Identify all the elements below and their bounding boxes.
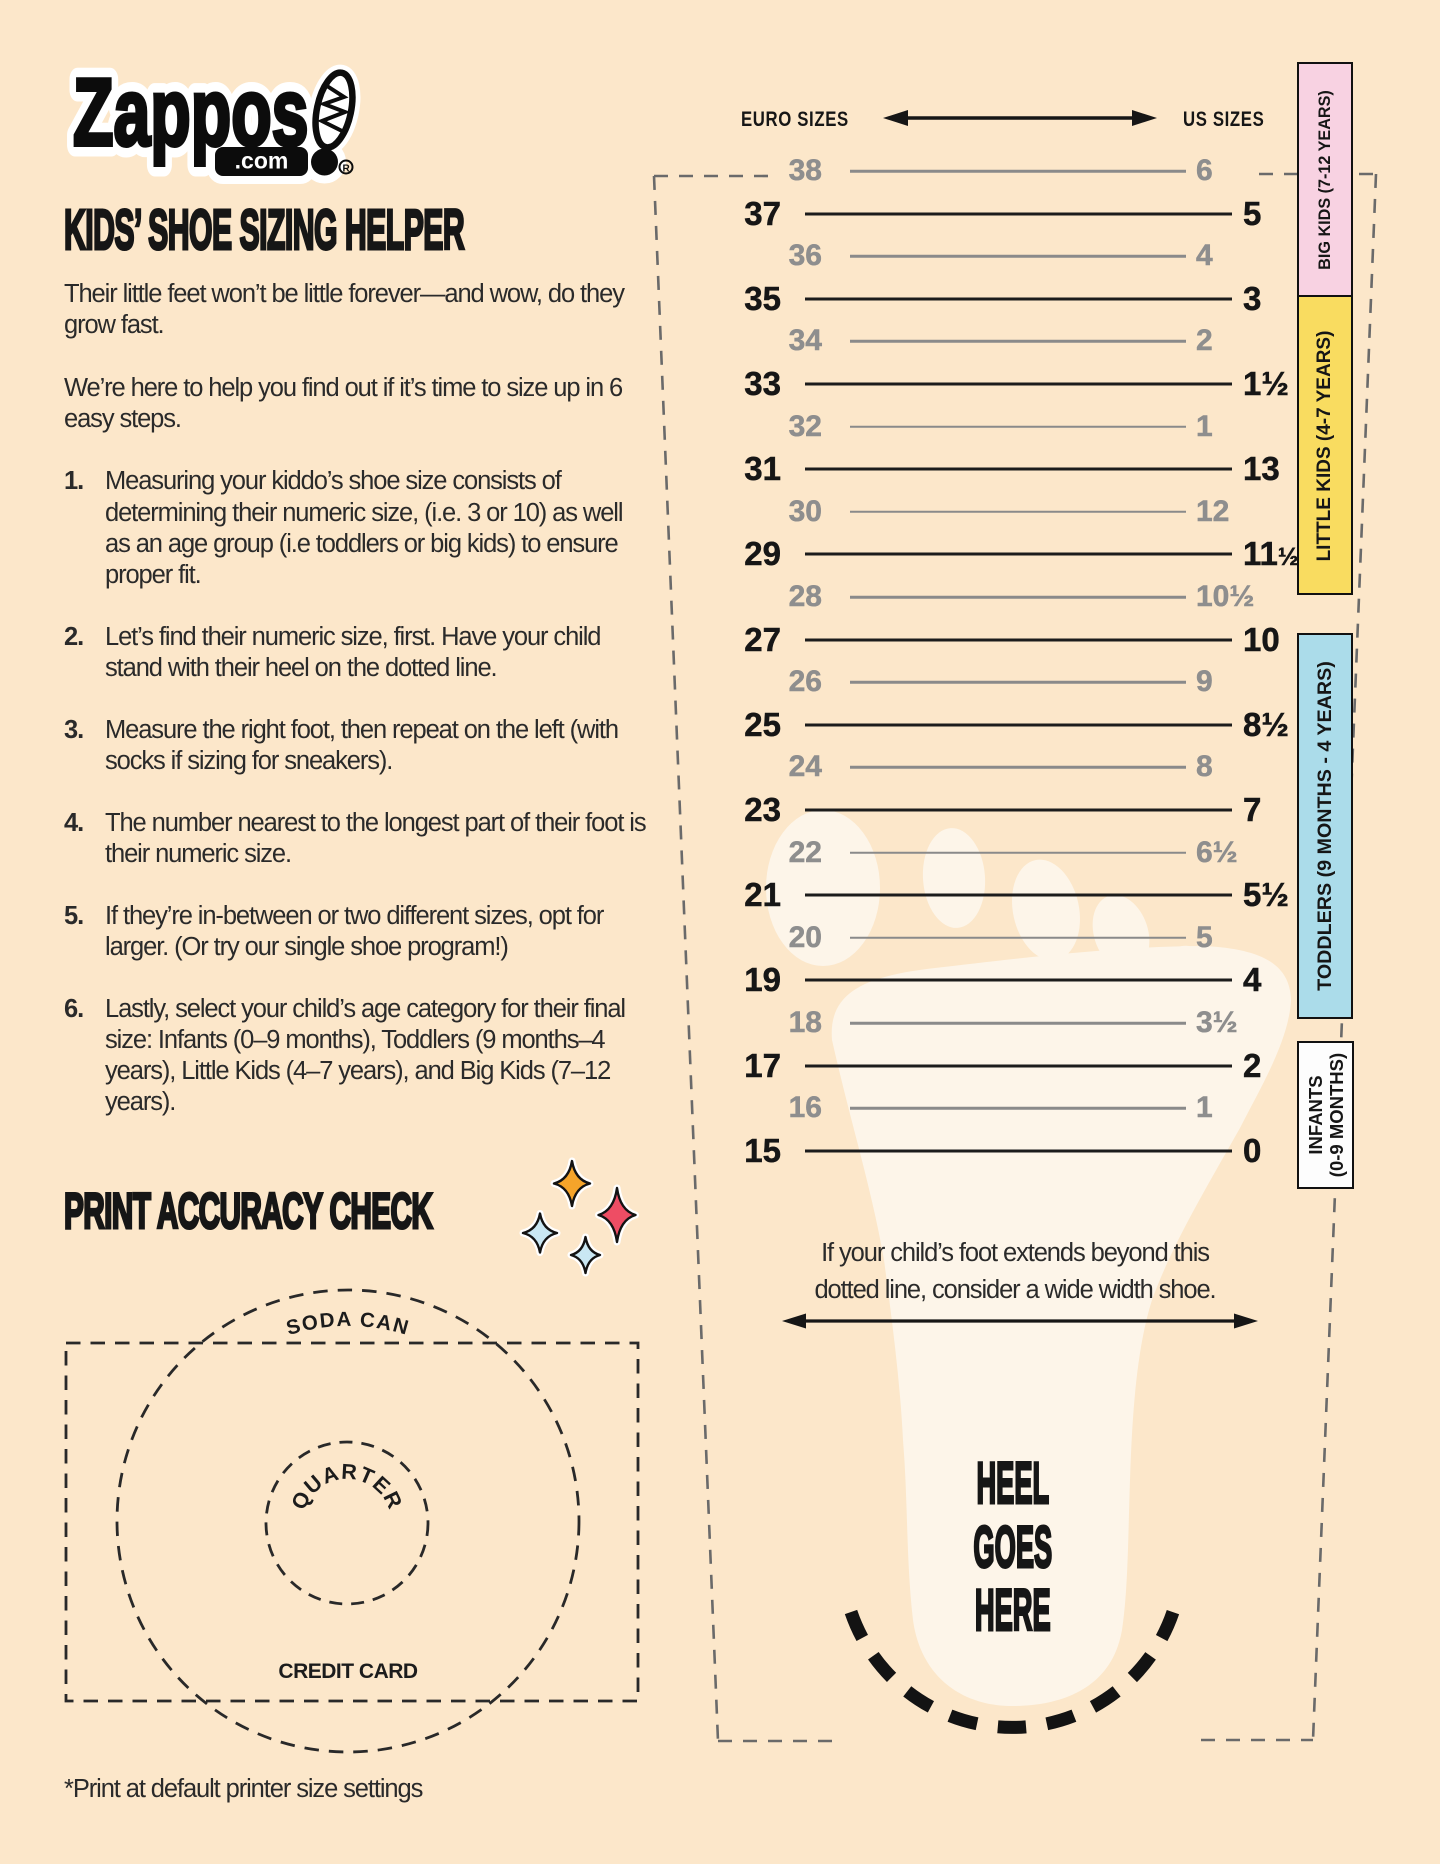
svg-text:R: R [343, 164, 351, 175]
svg-text:QUARTER: QUARTER [287, 1460, 408, 1514]
svg-text:SODA CAN: SODA CAN [284, 1308, 412, 1340]
svg-text:.com: .com [235, 148, 289, 174]
svg-text:CREDIT CARD: CREDIT CARD [278, 1660, 417, 1683]
